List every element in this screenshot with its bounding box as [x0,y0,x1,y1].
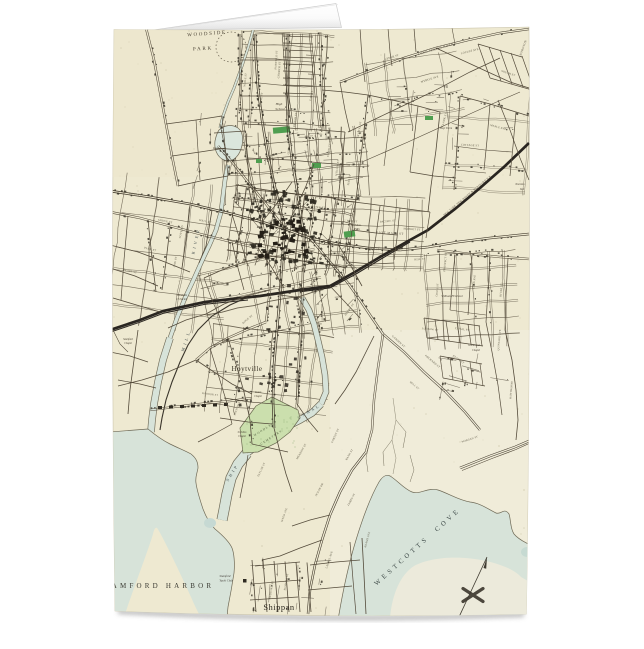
svg-text:Woodside: Woodside [177,294,188,297]
svg-text:Union: Union [255,391,262,394]
svg-text:Stamford: Stamford [123,338,133,341]
svg-text:Chapel: Chapel [124,342,132,345]
svg-text:GREEN ST: GREEN ST [365,248,380,252]
svg-text:Yacht Club: Yacht Club [219,579,233,583]
svg-text:School: School [275,107,284,111]
svg-text:Stamford: Stamford [220,574,231,578]
svg-text:PARK: PARK [193,46,213,52]
svg-text:Chapel: Chapel [472,349,480,352]
svg-text:St Johns: St Johns [238,431,247,434]
svg-text:Glenbrook: Glenbrook [468,344,481,347]
svg-text:Park: Park [353,228,360,231]
svg-text:St Johns: St Johns [351,224,360,227]
svg-text:Inst: Inst [519,188,524,191]
svg-text:Hoytville: Hoytville [232,365,263,373]
svg-text:Hoyt Farm: Hoyt Farm [439,127,452,130]
svg-text:Ch Society: Ch Society [176,298,188,301]
svg-text:High: High [275,102,283,106]
svg-text:Chapel: Chapel [238,435,246,438]
svg-text:Chapel: Chapel [254,395,262,398]
svg-text:William H School: William H School [441,294,462,298]
svg-text:Noroton: Noroton [514,183,525,186]
svg-text:Shippan: Shippan [263,602,295,612]
svg-text:STAMFORD HARBOR: STAMFORD HARBOR [98,582,214,590]
